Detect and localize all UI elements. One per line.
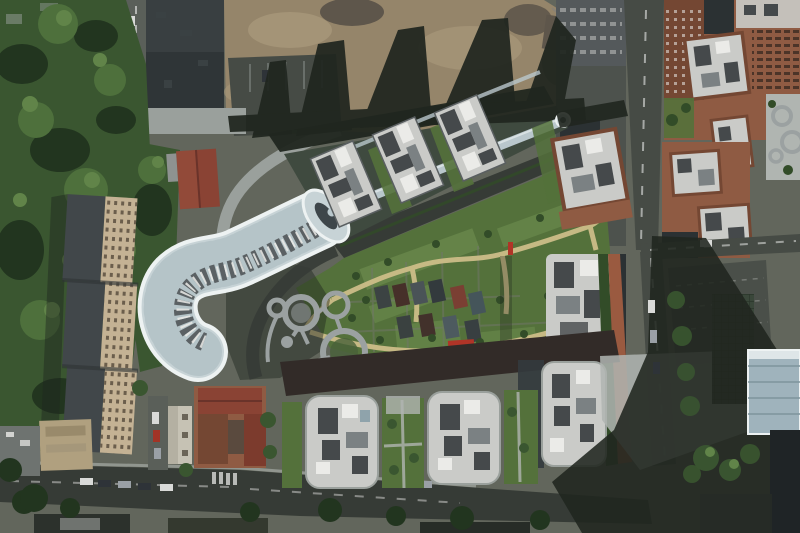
car bbox=[154, 448, 161, 459]
red-container bbox=[508, 242, 513, 255]
courtyard-circles-east bbox=[766, 94, 800, 180]
blue-glass-building bbox=[748, 350, 800, 434]
car bbox=[153, 430, 160, 442]
brick-framed-tower-center bbox=[546, 129, 633, 230]
side-street bbox=[148, 396, 168, 470]
slab-building bbox=[36, 193, 148, 454]
aerial-photo: Aerial top-down view of an urban residen… bbox=[0, 0, 800, 533]
brick-framed-tower-a bbox=[685, 33, 750, 100]
dark-corner-building bbox=[770, 430, 800, 533]
tan-tower bbox=[168, 406, 192, 464]
tan-building bbox=[39, 419, 93, 471]
green-strip-1 bbox=[382, 396, 424, 488]
aerial-photo-canvas bbox=[0, 0, 800, 533]
car bbox=[152, 412, 159, 424]
green-strip-2 bbox=[504, 390, 538, 484]
square-tower-1 bbox=[306, 396, 378, 488]
brick-courtyard-building bbox=[194, 386, 266, 468]
square-tower-2 bbox=[428, 392, 500, 484]
